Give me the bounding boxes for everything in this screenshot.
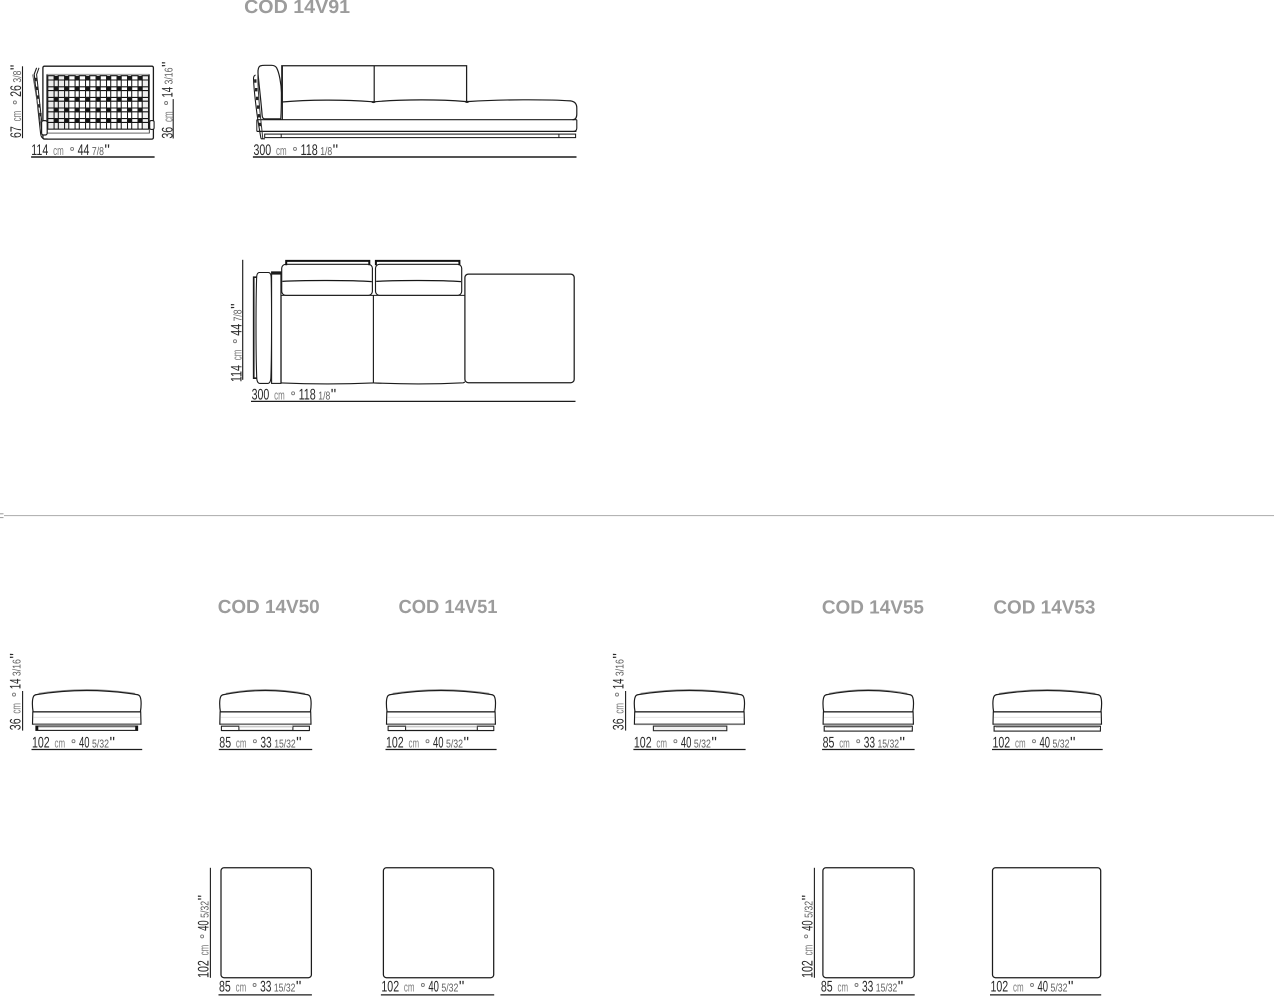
svg-text:44: 44 xyxy=(228,324,245,336)
svg-text:cm: cm xyxy=(229,350,244,361)
svg-text:7/8: 7/8 xyxy=(232,309,244,321)
svg-text:5/32: 5/32 xyxy=(441,982,458,994)
svg-text:15/32: 15/32 xyxy=(878,739,900,751)
svg-text:": " xyxy=(464,735,470,752)
svg-text:cm: cm xyxy=(656,736,667,751)
svg-text:85: 85 xyxy=(823,735,835,752)
svg-text:": " xyxy=(900,735,906,752)
svg-text:": " xyxy=(331,387,337,404)
svg-text:5/32: 5/32 xyxy=(199,901,211,918)
svg-text:5/32: 5/32 xyxy=(694,739,711,751)
svg-text:": " xyxy=(1068,978,1074,995)
svg-text:40: 40 xyxy=(433,735,444,752)
svg-text:5/32: 5/32 xyxy=(1051,982,1068,994)
svg-text:cm: cm xyxy=(611,703,626,714)
svg-text:1/8: 1/8 xyxy=(320,146,332,158)
svg-text:36: 36 xyxy=(7,718,24,730)
svg-text:cm: cm xyxy=(8,703,23,714)
svg-text:85: 85 xyxy=(219,978,231,995)
svg-text:cm: cm xyxy=(838,979,849,994)
svg-text:3/16: 3/16 xyxy=(11,659,23,676)
svg-text:cm: cm xyxy=(800,945,815,956)
svg-text:cm: cm xyxy=(404,979,415,994)
svg-text:cm: cm xyxy=(236,979,247,994)
svg-text:cm: cm xyxy=(160,111,175,122)
svg-text:3/16: 3/16 xyxy=(163,68,175,85)
svg-text:": " xyxy=(610,653,627,659)
svg-text:40: 40 xyxy=(1040,735,1051,752)
svg-text:5/32: 5/32 xyxy=(92,739,109,751)
svg-text:14: 14 xyxy=(610,678,627,689)
svg-text:": " xyxy=(799,895,816,901)
svg-text:40: 40 xyxy=(799,920,816,931)
svg-text:114: 114 xyxy=(31,142,48,159)
svg-text:COD 14V55: COD 14V55 xyxy=(822,597,924,618)
svg-text:": " xyxy=(898,978,904,995)
svg-text:": " xyxy=(1070,735,1076,752)
svg-text:102: 102 xyxy=(799,960,816,978)
svg-text:102: 102 xyxy=(991,978,1009,995)
svg-text:": " xyxy=(104,142,110,159)
svg-text:102: 102 xyxy=(993,735,1011,752)
svg-text:33: 33 xyxy=(260,978,271,995)
svg-text:": " xyxy=(7,653,24,659)
svg-text:": " xyxy=(8,65,25,71)
svg-text:15/32: 15/32 xyxy=(876,982,898,994)
svg-text:67: 67 xyxy=(8,126,25,138)
svg-text:7/8: 7/8 xyxy=(92,146,104,158)
svg-text:cm: cm xyxy=(53,143,64,158)
svg-text:cm: cm xyxy=(55,736,66,751)
svg-text:COD 14V50: COD 14V50 xyxy=(218,597,320,618)
svg-text:": " xyxy=(195,895,212,901)
svg-text:14: 14 xyxy=(159,87,176,98)
svg-text:40: 40 xyxy=(1038,978,1049,995)
svg-text:": " xyxy=(711,735,717,752)
svg-text:36: 36 xyxy=(610,718,627,730)
svg-text:300: 300 xyxy=(252,387,270,404)
svg-text:COD 14V51: COD 14V51 xyxy=(399,597,498,618)
svg-text:118: 118 xyxy=(301,142,318,159)
svg-text:33: 33 xyxy=(864,735,875,752)
svg-text:85: 85 xyxy=(219,735,231,752)
svg-text:40: 40 xyxy=(195,920,212,931)
svg-text:40: 40 xyxy=(79,735,90,752)
svg-text:": " xyxy=(333,142,339,159)
svg-text:102: 102 xyxy=(195,960,212,978)
svg-text:cm: cm xyxy=(196,945,211,956)
svg-text:cm: cm xyxy=(1013,979,1024,994)
svg-text:118: 118 xyxy=(299,387,316,404)
svg-text:33: 33 xyxy=(862,978,873,995)
svg-text:300: 300 xyxy=(254,142,272,159)
svg-text:cm: cm xyxy=(1015,736,1026,751)
svg-text:14: 14 xyxy=(7,678,24,689)
svg-text:26: 26 xyxy=(8,85,25,97)
svg-text:5/32: 5/32 xyxy=(1053,739,1070,751)
svg-text:COD 14V53: COD 14V53 xyxy=(993,597,1095,618)
svg-text:40: 40 xyxy=(681,735,692,752)
svg-text:36: 36 xyxy=(159,127,176,139)
svg-text:102: 102 xyxy=(32,735,50,752)
svg-text:40: 40 xyxy=(428,978,439,995)
svg-text:44: 44 xyxy=(78,142,90,159)
svg-text:5/32: 5/32 xyxy=(446,739,463,751)
svg-text:1/8: 1/8 xyxy=(318,391,330,403)
svg-text:15/32: 15/32 xyxy=(274,739,296,751)
svg-text:102: 102 xyxy=(386,735,404,752)
svg-text:": " xyxy=(459,978,465,995)
svg-text:3/8: 3/8 xyxy=(12,71,24,83)
svg-text:COD 14V91: COD 14V91 xyxy=(244,0,350,18)
svg-text:85: 85 xyxy=(821,978,833,995)
svg-text:114: 114 xyxy=(228,365,245,382)
svg-text:": " xyxy=(110,735,116,752)
svg-text:cm: cm xyxy=(274,388,285,403)
svg-text:": " xyxy=(228,303,245,309)
svg-text:cm: cm xyxy=(409,736,420,751)
svg-text:102: 102 xyxy=(634,735,652,752)
svg-text:102: 102 xyxy=(381,978,399,995)
svg-text:cm: cm xyxy=(276,143,287,158)
svg-text:": " xyxy=(296,735,302,752)
svg-text:cm: cm xyxy=(839,736,850,751)
svg-text:15/32: 15/32 xyxy=(274,982,296,994)
svg-text:3/16: 3/16 xyxy=(614,659,626,676)
svg-text:cm: cm xyxy=(9,111,24,122)
svg-text:cm: cm xyxy=(236,736,247,751)
svg-text:": " xyxy=(159,62,176,68)
svg-text:": " xyxy=(296,978,302,995)
svg-text:5/32: 5/32 xyxy=(803,901,815,918)
svg-text:33: 33 xyxy=(260,735,271,752)
